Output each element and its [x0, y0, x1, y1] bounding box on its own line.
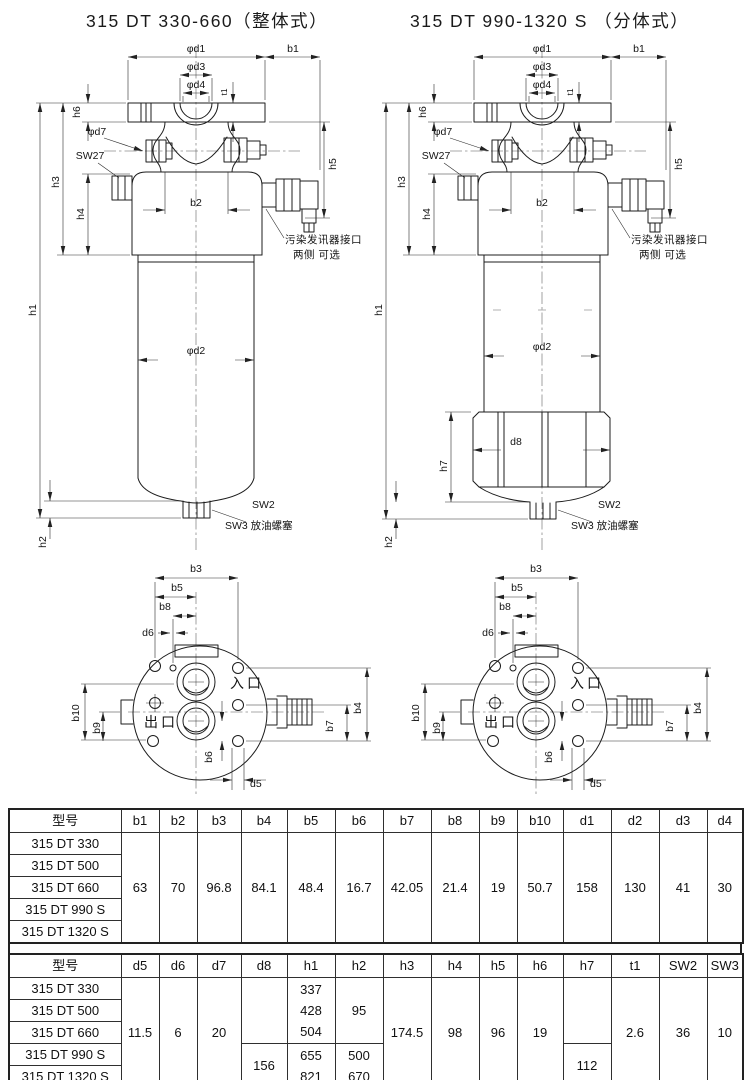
table1-header-row: 型号 b1 b2 b3 b4 b5 b6 b7 b8 b9 b10 d1 d2 …	[9, 809, 743, 833]
table1-value-b4: 84.1	[241, 833, 287, 944]
table2-value-h3: 174.5	[383, 978, 431, 1080]
table1-value-b10: 50.7	[517, 833, 563, 944]
table1-header-b9: b9	[479, 809, 517, 833]
sensor-port-note-line1: 污染发讯器接口	[285, 233, 362, 246]
table1-value-d2: 130	[611, 833, 659, 944]
table-divider	[8, 944, 742, 953]
h1-value-990s: 655	[288, 1045, 335, 1066]
dim-h4: h4	[75, 208, 87, 220]
dim-phi-d2: φd2	[187, 345, 206, 357]
table2-value-h7: 112	[563, 1044, 611, 1080]
model-cell: 315 DT 500	[9, 855, 121, 877]
table2-value-h2-upper: 95	[335, 978, 383, 1044]
dimension-table-2: 型号 d5 d6 d7 d8 h1 h2 h3 h4 h5 h6 h7 t1 S…	[8, 953, 744, 1080]
h1-value-1320s: 821	[288, 1066, 335, 1080]
table2-header-sw2: SW2	[659, 954, 707, 978]
table2-value-h1-upper: 337 428 504	[287, 978, 335, 1044]
table1-value-d4: 30	[707, 833, 743, 944]
table2-value-h5: 96	[479, 978, 517, 1080]
table1-header-d4: d4	[707, 809, 743, 833]
table1-header-d1: d1	[563, 809, 611, 833]
h2-value-1320s: 670	[336, 1066, 383, 1080]
table1-header-b1: b1	[121, 809, 159, 833]
dimension-tables: 型号 b1 b2 b3 b4 b5 b6 b7 b8 b9 b10 d1 d2 …	[8, 808, 742, 1080]
table1-value-b7: 42.05	[383, 833, 431, 944]
h1-value-660: 504	[288, 1021, 335, 1042]
table2-header-d6: d6	[159, 954, 197, 978]
dim-t1: t1	[219, 88, 229, 95]
table1-value-b9: 19	[479, 833, 517, 944]
label-sw3-drain-plug: SW3 放油螺塞	[225, 519, 293, 532]
flange-bottom-view: 入口 出口 b3 b5 b8 d6 b10 b9 b	[70, 563, 371, 795]
table1-header-b4: b4	[241, 809, 287, 833]
table1-header-b2: b2	[159, 809, 197, 833]
table2-value-sw3: 10	[707, 978, 743, 1080]
dim-b10: b10	[70, 704, 82, 722]
table1-value-b2: 70	[159, 833, 197, 944]
table1-value-d1: 158	[563, 833, 611, 944]
table1-value-b5: 48.4	[287, 833, 335, 944]
table2-value-h4: 98	[431, 978, 479, 1080]
table2-value-h7-blank	[563, 978, 611, 1044]
dim-h5: h5	[327, 158, 339, 170]
table2-value-d5: 11.5	[121, 978, 159, 1080]
filter-head-drawing: φd1 b1 φd3 φd4 t1 h6 h3	[36, 43, 362, 550]
table1-header-b5: b5	[287, 809, 335, 833]
dim-phi-d2: φd2	[533, 341, 552, 353]
dim-b2: b2	[190, 197, 202, 209]
body-split-drawing: d8 φd2 h7 h1 h2 SW2 SW3 放油螺塞	[373, 103, 639, 548]
dim-b7: b7	[324, 720, 336, 732]
dim-phi-d3: φd3	[187, 61, 206, 73]
label-sw2: SW2	[598, 499, 621, 511]
dim-b8: b8	[159, 601, 171, 613]
table1-header-d2: d2	[611, 809, 659, 833]
table2-value-d6: 6	[159, 978, 197, 1080]
table1-value-d3: 41	[659, 833, 707, 944]
dim-d6: d6	[142, 627, 154, 639]
table2-header-d7: d7	[197, 954, 241, 978]
table2-header-row: 型号 d5 d6 d7 d8 h1 h2 h3 h4 h5 h6 h7 t1 S…	[9, 954, 743, 978]
model-cell: 315 DT 330	[9, 833, 121, 855]
title-integral-type: 315 DT 330-660（整体式）	[86, 8, 328, 33]
dim-h1: h1	[373, 304, 385, 316]
model-cell: 315 DT 660	[9, 877, 121, 899]
table1-value-b1: 63	[121, 833, 159, 944]
model-cell: 315 DT 1320 S	[9, 921, 121, 944]
dim-phi-d1: φd1	[187, 43, 206, 55]
table2-header-t1: t1	[611, 954, 659, 978]
table2-value-h6: 19	[517, 978, 563, 1080]
outlet-label: 出口	[144, 714, 178, 730]
table2-value-d8-blank	[241, 978, 287, 1044]
table2-header-h1: h1	[287, 954, 335, 978]
dim-h2: h2	[383, 536, 395, 548]
dim-b3: b3	[190, 563, 202, 575]
dim-phi-d4: φd4	[187, 79, 206, 91]
dim-b5: b5	[171, 582, 183, 594]
dim-b4: b4	[352, 702, 364, 714]
dim-h3: h3	[50, 176, 62, 188]
table2-header-d5: d5	[121, 954, 159, 978]
dim-h6: h6	[71, 106, 83, 118]
table1-value-b6: 16.7	[335, 833, 383, 944]
dim-b6: b6	[203, 751, 215, 763]
h1-value-330: 337	[288, 979, 335, 1000]
table2-header-sw3: SW3	[707, 954, 743, 978]
table2-header-h3: h3	[383, 954, 431, 978]
table1-header-b3: b3	[197, 809, 241, 833]
label-sw3-drain-plug: SW3 放油螺塞	[571, 519, 639, 532]
table1-value-b8: 21.4	[431, 833, 479, 944]
table2-value-h1-lower: 655 821	[287, 1044, 335, 1080]
table2-value-sw2: 36	[659, 978, 707, 1080]
label-sw27: SW27	[76, 150, 105, 162]
table1-value-b3: 96.8	[197, 833, 241, 944]
table1-header-b6: b6	[335, 809, 383, 833]
dim-h7: h7	[438, 460, 450, 472]
dim-h2: h2	[37, 536, 49, 548]
table2-header-h6: h6	[517, 954, 563, 978]
sensor-port-note-line2: 两侧 可选	[293, 248, 340, 261]
table1-header-d3: d3	[659, 809, 707, 833]
body-integral-drawing: φd2 h1 h2 SW2 SW3 放油螺塞	[27, 103, 293, 548]
model-cell: 315 DT 500	[9, 1000, 121, 1022]
h1-value-500: 428	[288, 1000, 335, 1021]
dim-h1: h1	[27, 304, 39, 316]
table2-header-h7: h7	[563, 954, 611, 978]
table1-header-b7: b7	[383, 809, 431, 833]
dim-phi-d7: φd7	[88, 126, 107, 138]
side-views-canvas: φd1 b1 φd3 φd4 t1 h6 h3	[0, 42, 750, 558]
model-cell: 315 DT 1320 S	[9, 1066, 121, 1080]
h2-value-990s: 500	[336, 1045, 383, 1066]
table2-value-d7: 20	[197, 978, 241, 1080]
table2-value-t1: 2.6	[611, 978, 659, 1080]
filter-datasheet-page: 315 DT 330-660（整体式） 315 DT 990-1320 S （分…	[0, 0, 750, 1080]
inlet-label: 入口	[230, 675, 264, 691]
table2-header-h4: h4	[431, 954, 479, 978]
table2-value-h2-lower: 500 670	[335, 1044, 383, 1080]
dim-b1: b1	[287, 43, 299, 55]
model-cell: 315 DT 990 S	[9, 899, 121, 921]
table2-header-model: 型号	[9, 954, 121, 978]
model-cell: 315 DT 660	[9, 1022, 121, 1044]
table2-value-d8: 156	[241, 1044, 287, 1080]
table1-row-330: 315 DT 330 63 70 96.8 84.1 48.4 16.7 42.…	[9, 833, 743, 855]
table1-header-b8: b8	[431, 809, 479, 833]
table2-row-330: 315 DT 330 11.5 6 20 337 428 504 95 174.…	[9, 978, 743, 1000]
dimension-table-1: 型号 b1 b2 b3 b4 b5 b6 b7 b8 b9 b10 d1 d2 …	[8, 808, 744, 944]
title-split-type: 315 DT 990-1320 S （分体式）	[410, 8, 689, 33]
table1-header-model: 型号	[9, 809, 121, 833]
bottom-views-canvas: 入口 出口 b3 b5 b8 d6 b10 b9 b	[0, 556, 750, 806]
model-cell: 315 DT 330	[9, 978, 121, 1000]
table2-header-h2: h2	[335, 954, 383, 978]
label-sw2: SW2	[252, 499, 275, 511]
table1-header-b10: b10	[517, 809, 563, 833]
dim-b9: b9	[91, 722, 103, 734]
model-cell: 315 DT 990 S	[9, 1044, 121, 1066]
dim-d8: d8	[510, 436, 522, 448]
table2-header-h5: h5	[479, 954, 517, 978]
table2-header-d8: d8	[241, 954, 287, 978]
